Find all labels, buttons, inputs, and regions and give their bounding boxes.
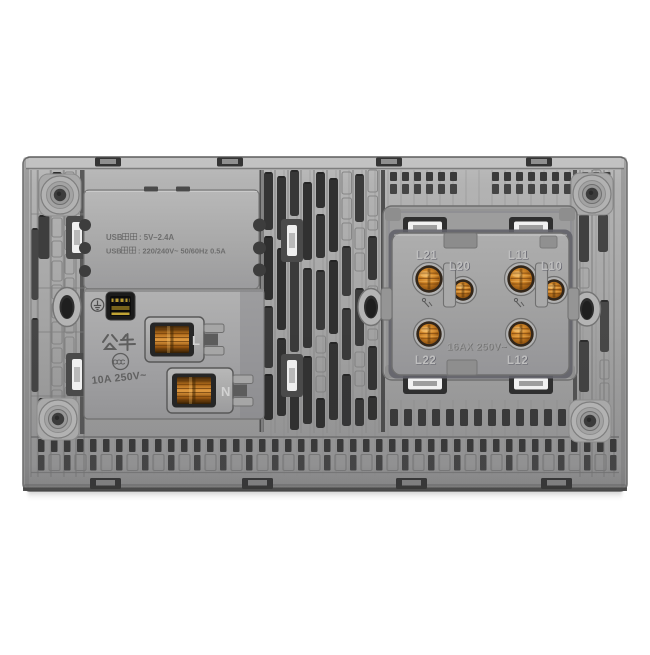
svg-text:: 220/240V~ 50/60Hz 0.5A: : 220/240V~ 50/60Hz 0.5A: [138, 247, 226, 256]
svg-text:USB: USB: [106, 233, 123, 242]
svg-text:CCC: CCC: [113, 360, 126, 367]
svg-text:L20: L20: [449, 261, 470, 273]
svg-text:: 5V–2.4A: : 5V–2.4A: [139, 233, 174, 242]
svg-text:N: N: [221, 384, 230, 399]
svg-text:USB: USB: [106, 247, 122, 256]
svg-text:L21: L21: [416, 250, 437, 262]
svg-text:16AX 250V~: 16AX 250V~: [447, 342, 507, 353]
svg-text:L: L: [192, 333, 200, 348]
svg-text:L12: L12: [507, 355, 528, 367]
svg-text:L22: L22: [415, 355, 436, 367]
svg-text:L10: L10: [541, 261, 562, 273]
svg-text:L11: L11: [508, 250, 529, 262]
